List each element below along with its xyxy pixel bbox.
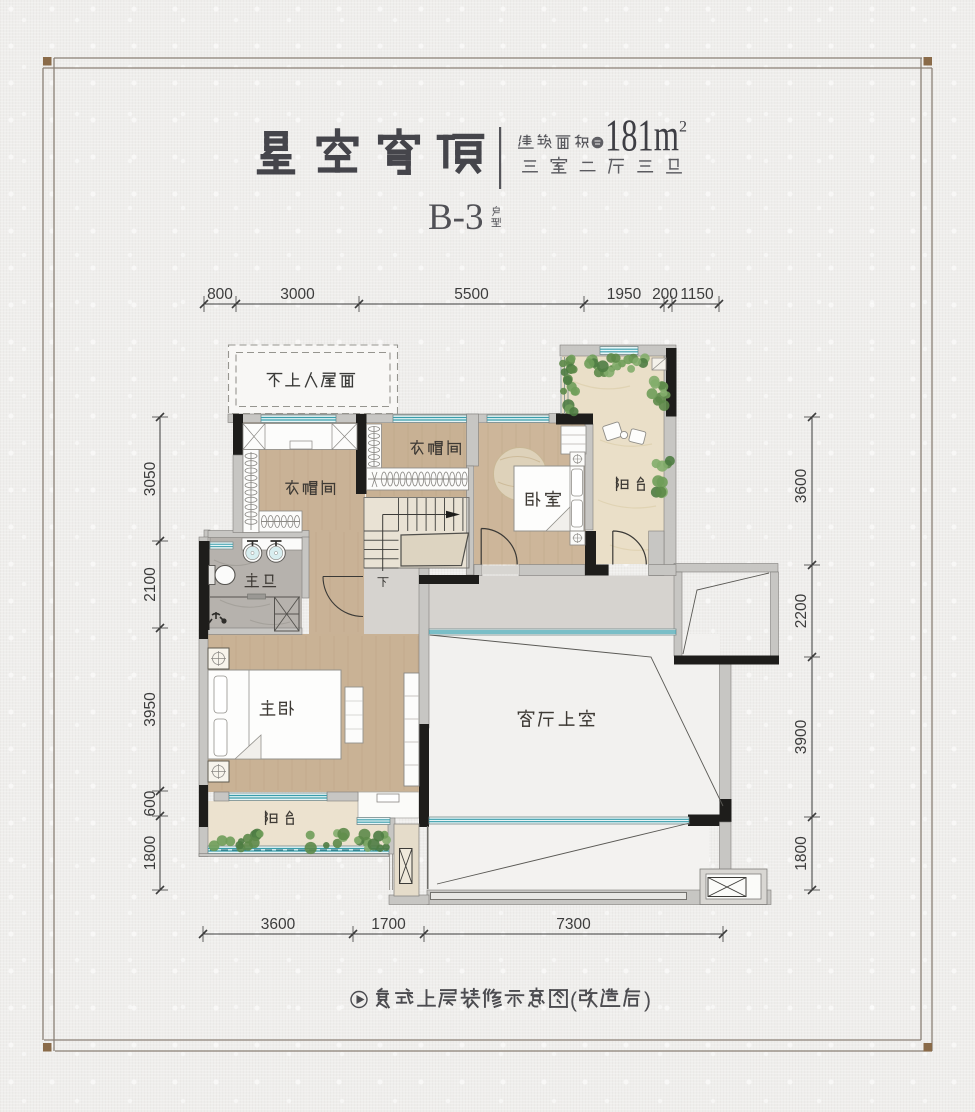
svg-text:): ): [644, 989, 651, 1012]
svg-text:3000: 3000: [280, 286, 315, 303]
svg-text:3950: 3950: [142, 692, 159, 727]
svg-text:1700: 1700: [371, 916, 406, 933]
svg-text:1800: 1800: [793, 836, 810, 871]
svg-text:(: (: [570, 989, 577, 1012]
svg-text:2200: 2200: [793, 593, 810, 628]
svg-text:2: 2: [679, 119, 687, 136]
svg-text:600: 600: [142, 790, 159, 816]
svg-text:1950: 1950: [607, 286, 642, 303]
svg-text:3900: 3900: [793, 719, 810, 754]
svg-text:1800: 1800: [142, 835, 159, 870]
svg-text:B-3: B-3: [428, 197, 484, 238]
svg-text:800: 800: [207, 286, 233, 303]
svg-text:3050: 3050: [142, 461, 159, 496]
svg-text:5500: 5500: [454, 286, 489, 303]
svg-text:200: 200: [652, 286, 678, 303]
svg-text:3600: 3600: [793, 468, 810, 503]
svg-text:1150: 1150: [680, 286, 714, 303]
svg-text:7300: 7300: [556, 916, 591, 933]
svg-text:3600: 3600: [261, 916, 296, 933]
svg-text:181m: 181m: [605, 110, 679, 161]
svg-text:2100: 2100: [142, 567, 159, 602]
